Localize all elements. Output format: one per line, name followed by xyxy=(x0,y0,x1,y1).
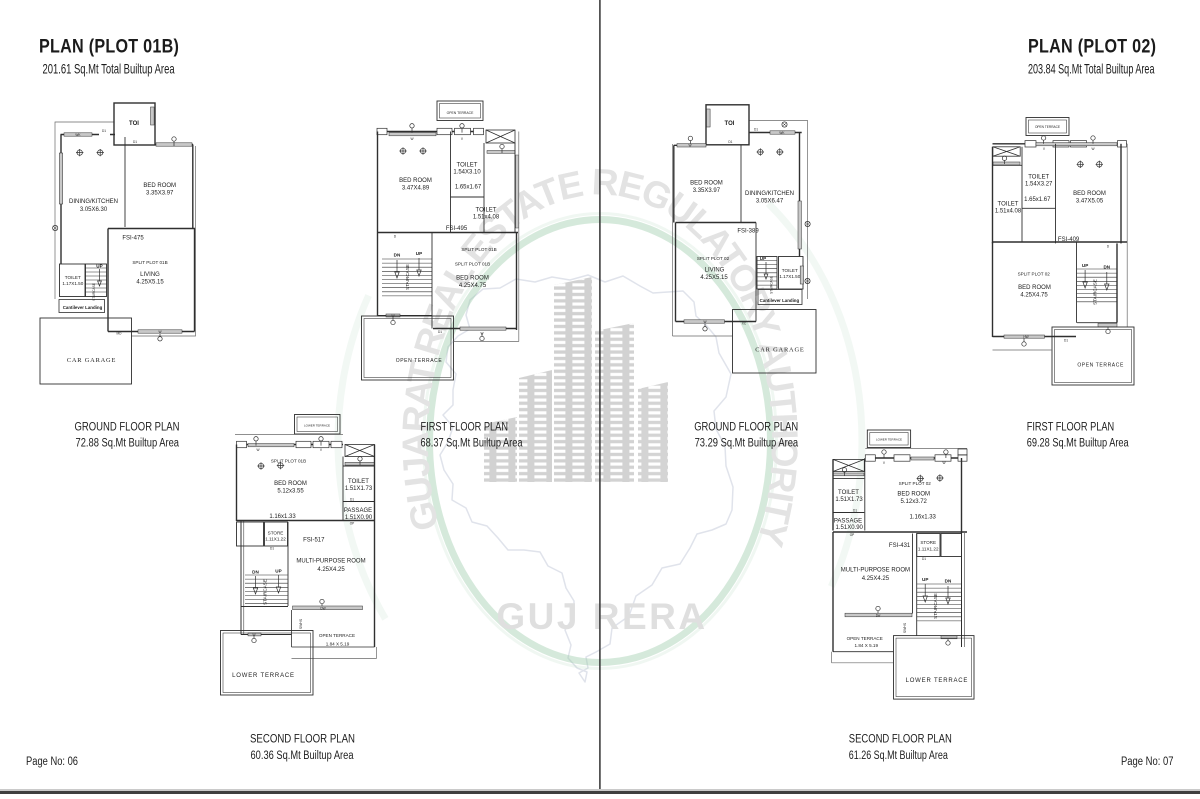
svg-text:DINING/KITCHEN: DINING/KITCHEN xyxy=(69,199,118,205)
svg-text:STAIRCASE: STAIRCASE xyxy=(1093,279,1098,305)
svg-text:73.29 Sq.Mt Builtup Area: 73.29 Sq.Mt Builtup Area xyxy=(695,438,799,450)
svg-text:3.35X3.97: 3.35X3.97 xyxy=(146,191,174,197)
svg-text:BED ROOM: BED ROOM xyxy=(274,481,307,487)
svg-text:1.65x1.67: 1.65x1.67 xyxy=(455,185,482,191)
svg-text:Page No: 06: Page No: 06 xyxy=(26,756,78,768)
svg-text:D: D xyxy=(394,235,397,239)
svg-text:OPEN TERRACE: OPEN TERRACE xyxy=(319,633,355,638)
svg-text:SPLIT PLOT 01B: SPLIT PLOT 01B xyxy=(271,459,306,464)
svg-text:TOILET: TOILET xyxy=(782,268,798,273)
svg-text:1.11X1.22: 1.11X1.22 xyxy=(918,547,939,552)
svg-text:D1: D1 xyxy=(350,498,354,502)
svg-text:DN: DN xyxy=(1103,265,1110,270)
svg-text:LOWER TERRACE: LOWER TERRACE xyxy=(876,438,902,442)
svg-text:OPEN TERRACE: OPEN TERRACE xyxy=(1035,125,1060,129)
svg-text:GUJ RERA: GUJ RERA xyxy=(496,596,707,637)
svg-text:STAIRCASE: STAIRCASE xyxy=(263,579,268,605)
svg-text:TOILET: TOILET xyxy=(457,163,478,169)
svg-text:UP: UP xyxy=(922,577,928,582)
svg-text:D1: D1 xyxy=(133,140,137,144)
svg-text:68.37 Sq.Mt Builtup Area: 68.37 Sq.Mt Builtup Area xyxy=(421,438,523,450)
svg-text:1.51x4.08: 1.51x4.08 xyxy=(473,215,500,221)
svg-text:1.51X0.90: 1.51X0.90 xyxy=(836,525,864,531)
svg-text:D1: D1 xyxy=(102,129,106,133)
svg-text:W: W xyxy=(942,461,945,465)
svg-text:D1: D1 xyxy=(438,330,442,334)
svg-text:D: D xyxy=(1107,245,1110,249)
svg-text:Dw: Dw xyxy=(876,614,881,618)
svg-text:FSI-431: FSI-431 xyxy=(889,543,911,549)
svg-text:SPLIT PLOT 01B: SPLIT PLOT 01B xyxy=(461,247,496,252)
svg-text:SPLIT PLOT 01B: SPLIT PLOT 01B xyxy=(132,260,167,265)
svg-text:BED ROOM: BED ROOM xyxy=(690,181,723,187)
svg-text:D1: D1 xyxy=(922,557,926,561)
svg-text:GROUND FLOOR PLAN: GROUND FLOOR PLAN xyxy=(75,422,180,434)
svg-text:PLAN (PLOT 01B): PLAN (PLOT 01B) xyxy=(39,35,179,57)
svg-text:W: W xyxy=(688,144,691,148)
svg-text:DINING/KITCHEN: DINING/KITCHEN xyxy=(745,191,794,197)
svg-text:1.84 X 5.19: 1.84 X 5.19 xyxy=(855,643,879,648)
svg-text:5.12x3.55: 5.12x3.55 xyxy=(277,489,304,495)
svg-text:FSI-517: FSI-517 xyxy=(303,538,325,544)
svg-text:DN: DN xyxy=(945,579,952,584)
svg-text:V: V xyxy=(461,137,464,141)
svg-text:W: W xyxy=(703,320,706,324)
svg-text:BED ROOM: BED ROOM xyxy=(143,183,176,189)
svg-text:BED ROOM: BED ROOM xyxy=(456,276,489,282)
svg-text:DN: DN xyxy=(252,570,259,575)
svg-text:STAIRCASE: STAIRCASE xyxy=(770,276,774,294)
svg-text:4.25X5.15: 4.25X5.15 xyxy=(700,275,728,281)
svg-text:1.11X1.22: 1.11X1.22 xyxy=(265,537,286,542)
svg-text:TOI: TOI xyxy=(725,121,735,127)
svg-text:72.88 Sq.Mt Builtup Area: 72.88 Sq.Mt Builtup Area xyxy=(76,438,180,450)
svg-text:W: W xyxy=(410,137,413,141)
svg-text:MULTI-PURPOSE ROOM: MULTI-PURPOSE ROOM xyxy=(296,559,365,565)
svg-text:D1: D1 xyxy=(1064,339,1068,343)
svg-text:D1: D1 xyxy=(270,547,274,551)
svg-text:DW: DW xyxy=(320,606,325,610)
svg-text:UP: UP xyxy=(275,569,281,574)
svg-text:BED ROOM: BED ROOM xyxy=(399,178,432,184)
svg-text:OPEN TERRACE: OPEN TERRACE xyxy=(847,636,883,641)
svg-text:V: V xyxy=(320,448,323,452)
svg-text:WK: WK xyxy=(75,133,81,137)
svg-text:OPEN TERRACE: OPEN TERRACE xyxy=(396,358,443,364)
svg-text:SWHS: SWHS xyxy=(299,618,303,629)
svg-text:4.25X5.15: 4.25X5.15 xyxy=(136,280,164,286)
svg-text:W: W xyxy=(158,330,161,334)
svg-text:TOILET: TOILET xyxy=(65,275,81,280)
svg-text:STORE: STORE xyxy=(268,531,284,536)
svg-text:BED ROOM: BED ROOM xyxy=(1073,191,1106,197)
svg-text:LOWER TERRACE: LOWER TERRACE xyxy=(232,673,295,679)
svg-text:V: V xyxy=(883,461,886,465)
svg-text:PASSAGE: PASSAGE xyxy=(834,519,862,525)
svg-text:LIVING: LIVING xyxy=(705,268,725,274)
svg-text:STAIRCASE: STAIRCASE xyxy=(933,593,938,619)
svg-text:4.25X4.75: 4.25X4.75 xyxy=(1020,293,1048,299)
svg-text:MULTI-PURPOSE ROOM: MULTI-PURPOSE ROOM xyxy=(841,568,910,574)
svg-text:SWHS: SWHS xyxy=(903,622,907,633)
svg-text:SECOND FLOOR PLAN: SECOND FLOOR PLAN xyxy=(250,734,355,746)
svg-text:D1: D1 xyxy=(754,128,758,132)
svg-text:1.51x4.08: 1.51x4.08 xyxy=(995,209,1022,215)
svg-text:TOILET: TOILET xyxy=(838,490,859,496)
svg-text:UP: UP xyxy=(416,251,422,256)
svg-text:WK: WK xyxy=(779,131,785,135)
svg-text:LOWER TERRACE: LOWER TERRACE xyxy=(906,678,969,684)
svg-text:1.54X3.10: 1.54X3.10 xyxy=(453,170,481,176)
svg-text:3.47X5.05: 3.47X5.05 xyxy=(1076,199,1104,205)
svg-text:V: V xyxy=(1043,147,1046,151)
svg-text:PASSAGE: PASSAGE xyxy=(344,508,372,514)
svg-text:CAR GARAGE: CAR GARAGE xyxy=(67,357,116,364)
svg-text:STAIRCASE: STAIRCASE xyxy=(92,283,96,301)
svg-text:4.25X4.25: 4.25X4.25 xyxy=(317,567,345,573)
svg-text:LIVING: LIVING xyxy=(140,272,160,278)
svg-text:BED ROOM: BED ROOM xyxy=(897,492,930,498)
svg-text:SPLIT PLOT 01B: SPLIT PLOT 01B xyxy=(455,262,490,267)
svg-text:61.26 Sq.Mt Builtup Area: 61.26 Sq.Mt Builtup Area xyxy=(849,750,948,762)
svg-text:FSI-495: FSI-495 xyxy=(446,226,468,232)
svg-text:5.12x3.72: 5.12x3.72 xyxy=(901,499,928,505)
svg-text:GROUND FLOOR PLAN: GROUND FLOOR PLAN xyxy=(694,422,798,434)
svg-text:SPLIT PLOT 02: SPLIT PLOT 02 xyxy=(697,256,730,261)
svg-text:1.17X1.50: 1.17X1.50 xyxy=(779,274,800,279)
svg-text:1.65x1.67: 1.65x1.67 xyxy=(1024,197,1051,203)
svg-text:4.25X4.75: 4.25X4.75 xyxy=(459,283,487,289)
svg-text:OPEN TERRACE: OPEN TERRACE xyxy=(1077,363,1124,369)
svg-text:1.84 X 5.19: 1.84 X 5.19 xyxy=(326,642,350,647)
svg-text:1.16x1.33: 1.16x1.33 xyxy=(910,515,937,521)
svg-text:69.28 Sq.Mt Builtup Area: 69.28 Sq.Mt Builtup Area xyxy=(1027,438,1129,450)
svg-text:Page No: 07: Page No: 07 xyxy=(1121,756,1174,768)
svg-text:TOILET: TOILET xyxy=(476,208,497,214)
svg-text:CAR GARAGE: CAR GARAGE xyxy=(755,347,804,354)
svg-text:3.35X3.97: 3.35X3.97 xyxy=(693,188,721,194)
svg-text:STAIRCASE: STAIRCASE xyxy=(405,264,410,290)
svg-text:OP: OP xyxy=(350,522,355,526)
svg-text:W: W xyxy=(256,448,259,452)
svg-text:TOILET: TOILET xyxy=(1028,175,1049,181)
svg-text:D1: D1 xyxy=(728,140,732,144)
svg-text:60.36 Sq.Mt Builtup Area: 60.36 Sq.Mt Builtup Area xyxy=(251,750,354,762)
svg-text:FIRST FLOOR PLAN: FIRST FLOOR PLAN xyxy=(1027,422,1115,434)
svg-text:DN: DN xyxy=(394,253,401,258)
svg-text:D1: D1 xyxy=(853,509,857,513)
svg-text:3.05X6.47: 3.05X6.47 xyxy=(756,199,784,205)
svg-text:201.61 Sq.Mt Total Builtup Are: 201.61 Sq.Mt Total Builtup Area xyxy=(43,62,176,77)
svg-text:TOI: TOI xyxy=(129,121,139,127)
svg-text:W: W xyxy=(1091,147,1094,151)
svg-text:FSI-475: FSI-475 xyxy=(122,236,144,242)
svg-text:TOILET: TOILET xyxy=(998,202,1019,208)
svg-text:OP: OP xyxy=(850,533,855,537)
svg-text:OPEN TERRACE: OPEN TERRACE xyxy=(447,111,474,115)
svg-text:MD: MD xyxy=(117,332,123,336)
svg-text:XC: XC xyxy=(742,322,747,326)
svg-text:SPLIT PLOT 02: SPLIT PLOT 02 xyxy=(899,481,932,486)
svg-text:3.47X4.89: 3.47X4.89 xyxy=(402,186,430,192)
svg-text:PLAN (PLOT 02): PLAN (PLOT 02) xyxy=(1028,35,1156,57)
svg-text:1.17X1.50: 1.17X1.50 xyxy=(62,281,83,286)
svg-text:BED ROOM: BED ROOM xyxy=(1018,285,1051,291)
svg-text:LOWER TERRACE: LOWER TERRACE xyxy=(304,424,330,428)
svg-text:HW: HW xyxy=(1023,335,1028,339)
svg-text:1.54X3.27: 1.54X3.27 xyxy=(1025,182,1053,188)
svg-text:203.84 Sq.Mt Total Builtup Are: 203.84 Sq.Mt Total Builtup Area xyxy=(1028,63,1155,77)
svg-text:1.51X1.73: 1.51X1.73 xyxy=(345,486,373,492)
svg-text:SPLIT PLOT 02: SPLIT PLOT 02 xyxy=(1018,272,1051,277)
svg-text:1.51X1.73: 1.51X1.73 xyxy=(835,497,863,503)
svg-text:3.05X6.30: 3.05X6.30 xyxy=(80,207,108,213)
svg-text:Cantilever Landing: Cantilever Landing xyxy=(63,305,103,310)
svg-text:STORE: STORE xyxy=(920,540,936,545)
svg-text:UP: UP xyxy=(1082,263,1088,268)
svg-text:FIRST FLOOR PLAN: FIRST FLOOR PLAN xyxy=(421,422,509,434)
svg-text:UP: UP xyxy=(96,264,102,269)
svg-text:1.16x1.33: 1.16x1.33 xyxy=(269,514,296,520)
svg-text:TOILET: TOILET xyxy=(348,479,369,485)
svg-text:Cantilever Landing: Cantilever Landing xyxy=(760,298,800,303)
svg-text:UP: UP xyxy=(760,256,766,261)
svg-text:4.25X4.25: 4.25X4.25 xyxy=(862,576,890,582)
svg-text:SECOND FLOOR PLAN: SECOND FLOOR PLAN xyxy=(849,734,952,746)
